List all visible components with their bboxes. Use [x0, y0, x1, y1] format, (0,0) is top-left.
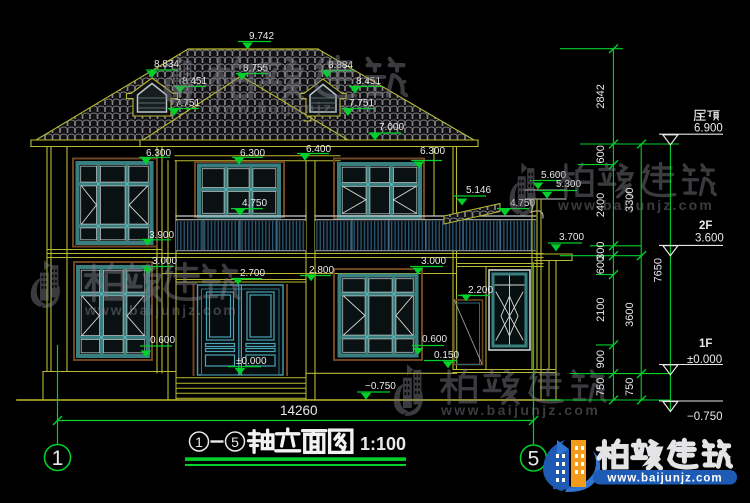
- svg-text:−0.750: −0.750: [687, 411, 723, 423]
- svg-text:3.700: 3.700: [559, 232, 584, 243]
- svg-text:3600: 3600: [624, 302, 636, 326]
- svg-text:0.600: 0.600: [150, 335, 175, 346]
- svg-text:600: 600: [595, 145, 607, 163]
- svg-text:7650: 7650: [653, 258, 665, 282]
- svg-text:7.000: 7.000: [379, 122, 404, 133]
- svg-text:−0.750: −0.750: [365, 381, 396, 392]
- svg-text:14260: 14260: [280, 403, 318, 418]
- svg-text:3.600: 3.600: [695, 233, 724, 245]
- svg-text:6.300: 6.300: [420, 146, 445, 157]
- svg-text:1F: 1F: [699, 338, 712, 350]
- svg-text:600: 600: [595, 256, 607, 274]
- svg-text:1:100: 1:100: [360, 434, 406, 454]
- svg-text:±0.000: ±0.000: [236, 356, 267, 367]
- svg-text:2100: 2100: [595, 297, 607, 321]
- svg-text:3300: 3300: [624, 188, 636, 212]
- svg-text:2400: 2400: [595, 193, 607, 217]
- svg-text:3.000: 3.000: [152, 256, 177, 267]
- svg-text:1: 1: [195, 434, 203, 450]
- svg-text:0.600: 0.600: [422, 334, 447, 345]
- svg-text:900: 900: [595, 350, 607, 368]
- svg-text:2.200: 2.200: [468, 285, 493, 296]
- svg-text:3.000: 3.000: [421, 256, 446, 267]
- svg-text:750: 750: [624, 378, 636, 396]
- svg-text:1: 1: [52, 447, 64, 470]
- svg-text:0.150: 0.150: [434, 350, 459, 361]
- svg-text:www.baijunjz.com: www.baijunjz.com: [440, 402, 600, 418]
- svg-text:750: 750: [595, 378, 607, 396]
- svg-text:2F: 2F: [699, 220, 712, 232]
- svg-text:5: 5: [528, 448, 540, 471]
- svg-text:5: 5: [231, 434, 239, 450]
- svg-text:www.baijunjz.com: www.baijunjz.com: [606, 473, 722, 485]
- svg-text:www.baijunjz.com: www.baijunjz.com: [208, 100, 378, 117]
- svg-text:2.700: 2.700: [240, 268, 265, 279]
- svg-text:4.750: 4.750: [242, 198, 267, 209]
- svg-text:9.742: 9.742: [249, 31, 274, 42]
- svg-text:6.900: 6.900: [694, 123, 723, 135]
- svg-text:2842: 2842: [595, 84, 607, 108]
- svg-text:5.146: 5.146: [466, 185, 491, 196]
- svg-text:www.baijunjz.com: www.baijunjz.com: [84, 302, 238, 318]
